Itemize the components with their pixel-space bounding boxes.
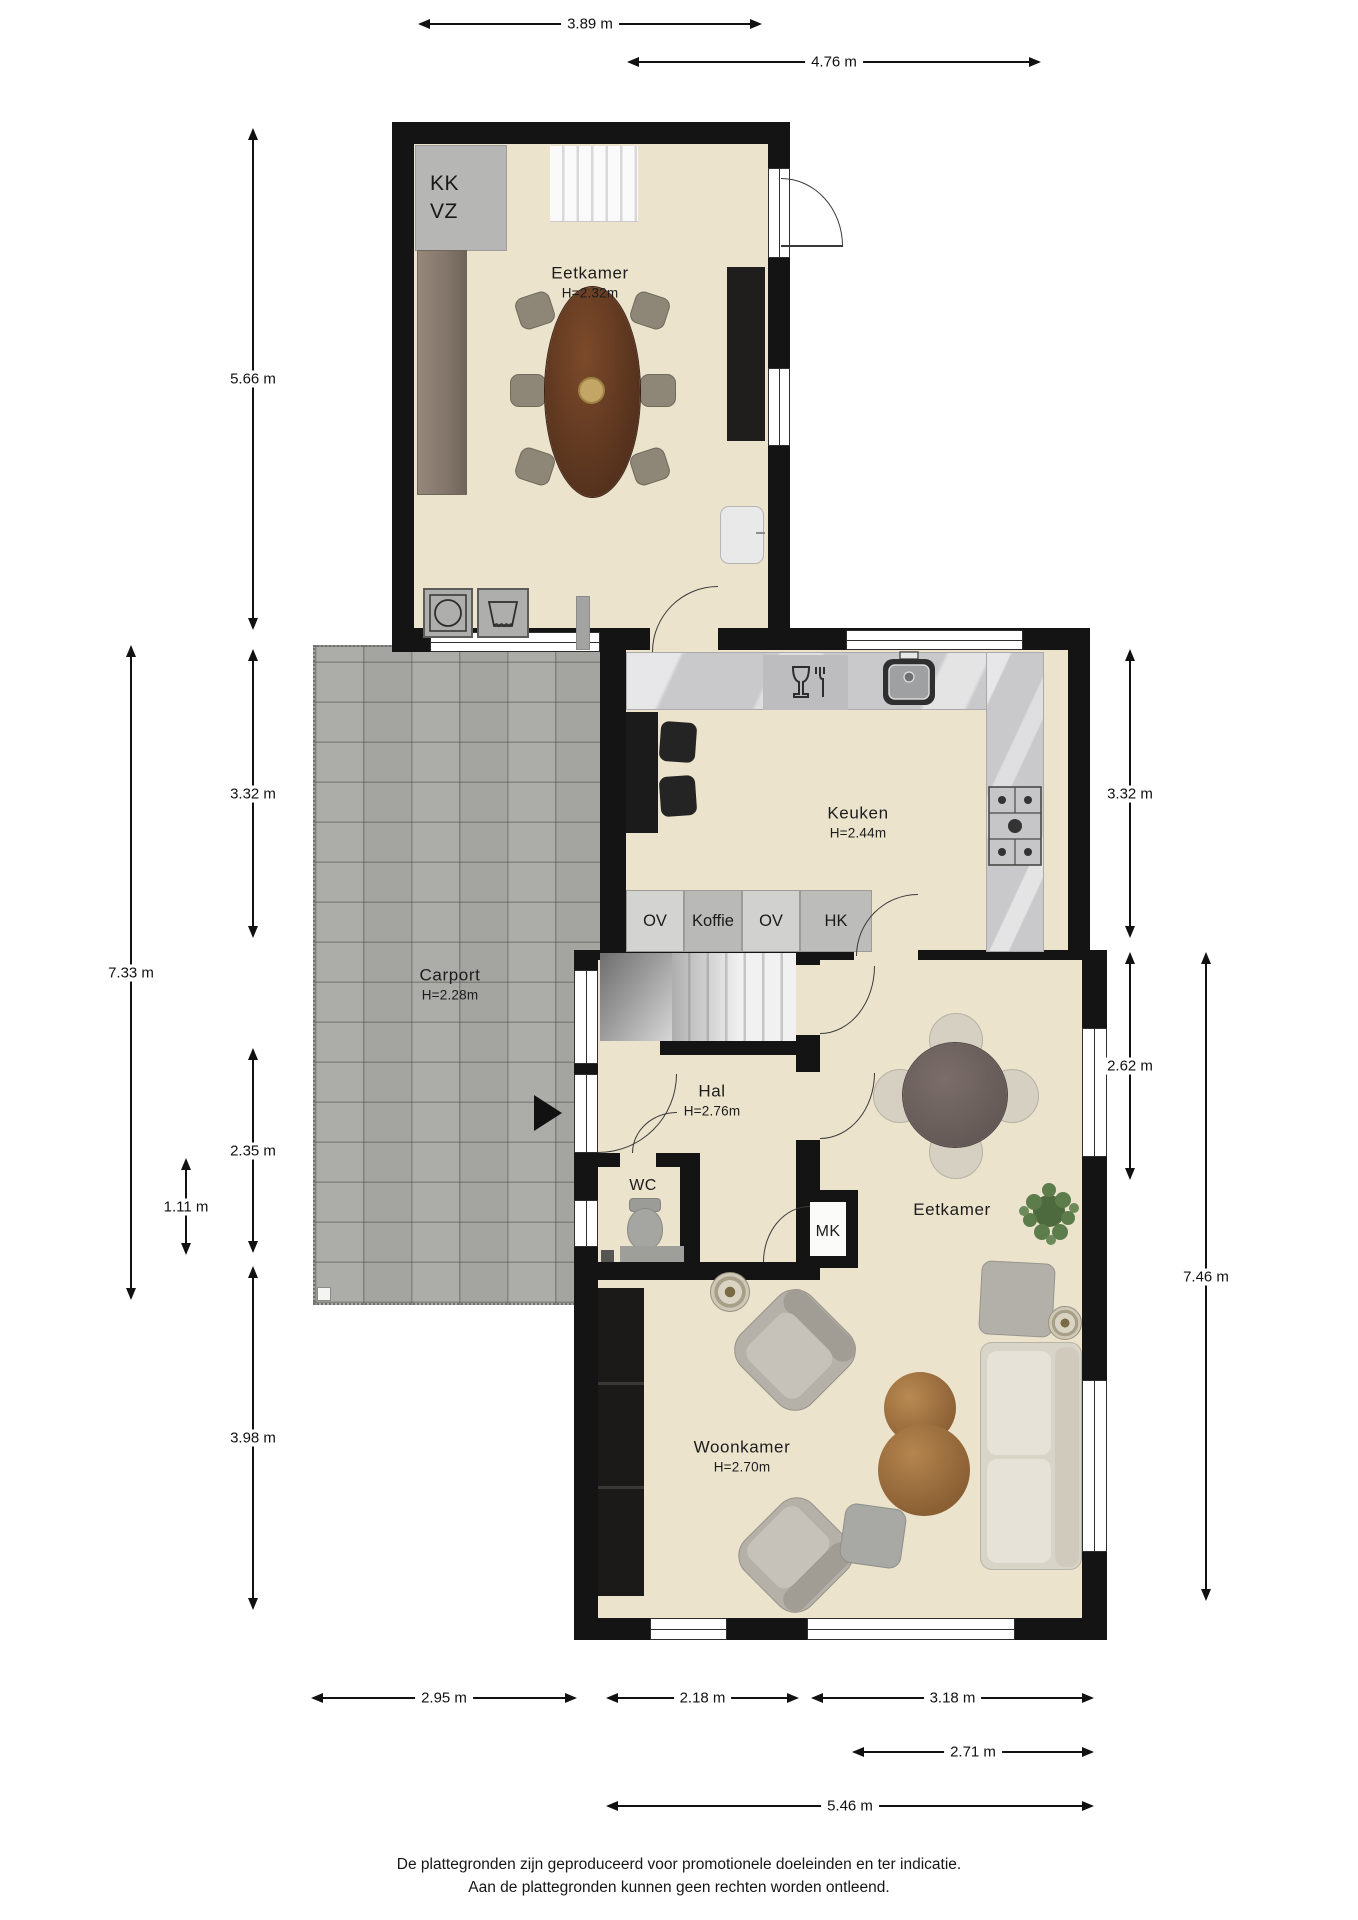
room-label-living: Woonkamer H=2.70m <box>694 1438 791 1475</box>
window-kitchen-top <box>846 630 1023 650</box>
dimension-bottom-318: 3.18 m <box>811 1688 1094 1708</box>
utility-sink-faucet <box>756 532 765 534</box>
dimension-top-2: 4.76 m <box>627 52 1041 72</box>
dimension-left-235: 2.35 m <box>243 1048 263 1253</box>
speaker-icon <box>710 1272 750 1312</box>
window-wc-left <box>574 1200 598 1247</box>
window-dining-right <box>1082 1028 1107 1157</box>
vz-label: VZ <box>430 198 506 226</box>
dimension-bottom-546: 5.46 m <box>606 1796 1094 1816</box>
room-label-carport: Carport H=2.28m <box>420 966 481 1003</box>
kitchen-sink-icon <box>878 650 940 710</box>
table-centerpiece <box>578 377 605 404</box>
window-living-bottom-left <box>650 1618 727 1640</box>
door-leaf-line <box>781 245 843 247</box>
speaker-icon <box>1048 1306 1082 1340</box>
sofa-back <box>1055 1347 1079 1567</box>
dimension-bottom-218: 2.18 m <box>606 1688 799 1708</box>
shutter-stairs-icon <box>550 146 638 222</box>
door-gap-hall-dining-1 <box>796 965 820 1035</box>
media-cabinet-divider <box>598 1382 644 1385</box>
media-cabinet-divider <box>598 1486 644 1489</box>
dimension-top-1: 3.89 m <box>418 14 762 34</box>
window-hall-left <box>574 970 598 1064</box>
sofa-side-pouf <box>978 1260 1056 1338</box>
floorplan-canvas: KK VZ <box>0 0 1358 1920</box>
door-gap-hall-dining-2 <box>796 1072 820 1140</box>
laundry-basket-icon <box>477 588 529 638</box>
room-label-wc: WC <box>629 1177 656 1195</box>
stair-winder <box>600 953 672 1041</box>
dimension-left-733: 7.33 m <box>121 645 141 1300</box>
dimension-left-566: 5.66 m <box>243 128 263 630</box>
window-living-bottom-right <box>807 1618 1015 1640</box>
wall-wc-top-left <box>598 1153 620 1167</box>
bar-table <box>626 712 658 833</box>
window-diningtop-right <box>768 368 790 446</box>
room-label-mk: MK <box>816 1223 841 1241</box>
media-cabinet <box>598 1288 644 1596</box>
bar-chair <box>659 775 698 817</box>
dimension-bottom-295: 2.95 m <box>311 1688 577 1708</box>
dimension-right-746: 7.46 m <box>1196 952 1216 1601</box>
dimension-right-332: 3.32 m <box>1120 649 1140 938</box>
door-arc-diningtop-exterior <box>781 178 843 246</box>
entrance-arrow-icon <box>534 1095 562 1131</box>
wc-counter <box>620 1246 684 1262</box>
dimension-right-262: 2.62 m <box>1120 952 1140 1180</box>
room-label-hall: Hal H=2.76m <box>684 1082 741 1119</box>
sofa <box>980 1342 1082 1570</box>
room-label-dining: Eetkamer <box>913 1200 991 1220</box>
appliance-cabinet-row: OV Koffie OV HK <box>626 890 872 952</box>
room-label-dining-top: Eetkamer H=2.32m <box>551 264 629 301</box>
pouf <box>838 1502 908 1570</box>
utility-sink <box>720 506 764 564</box>
sofa-cushion <box>987 1351 1051 1455</box>
carport-corner-tile <box>317 1287 331 1301</box>
kk-vz-unit: KK VZ <box>415 145 507 251</box>
bar-chair <box>659 721 698 763</box>
dimension-bottom-271: 2.71 m <box>852 1742 1094 1762</box>
washing-machine-icon <box>423 588 473 638</box>
chimney-panel <box>727 267 765 441</box>
dimension-left-332: 3.32 m <box>243 649 263 938</box>
front-door-opening <box>574 1074 598 1153</box>
disclaimer-line-2: Aan de plattegronden kunnen geen rechten… <box>0 1879 1358 1897</box>
dining-chair <box>640 374 676 407</box>
dining-chair <box>510 374 546 407</box>
room-label-kitchen: Keuken H=2.44m <box>827 804 888 841</box>
sideboard-cabinet <box>417 250 467 495</box>
koffie-cabinet: Koffie <box>684 890 742 952</box>
sofa-cushion <box>987 1459 1051 1563</box>
coffee-table-large <box>878 1424 970 1516</box>
oven-cabinet-2: OV <box>742 890 800 952</box>
wall-stairs-bottom <box>660 1041 796 1055</box>
stove-icon <box>988 786 1042 866</box>
radiator <box>576 596 590 650</box>
toilet-bowl <box>627 1208 663 1250</box>
disclaimer-line-1: De plattegronden zijn geproduceerd voor … <box>0 1856 1358 1874</box>
dishwasher-icon <box>763 655 848 710</box>
oven-cabinet: OV <box>626 890 684 952</box>
dimension-left-398: 3.98 m <box>243 1266 263 1610</box>
plant-icon <box>1016 1178 1082 1248</box>
window-living-right <box>1082 1380 1107 1552</box>
dimension-left-111: 1.11 m <box>176 1158 196 1255</box>
staircase <box>600 953 796 1041</box>
kk-label: KK <box>430 170 506 198</box>
stair-treads <box>672 953 796 1041</box>
wc-drain <box>601 1250 614 1262</box>
wall-hall-bottom <box>598 1262 820 1280</box>
round-dining-table <box>903 1043 1007 1147</box>
